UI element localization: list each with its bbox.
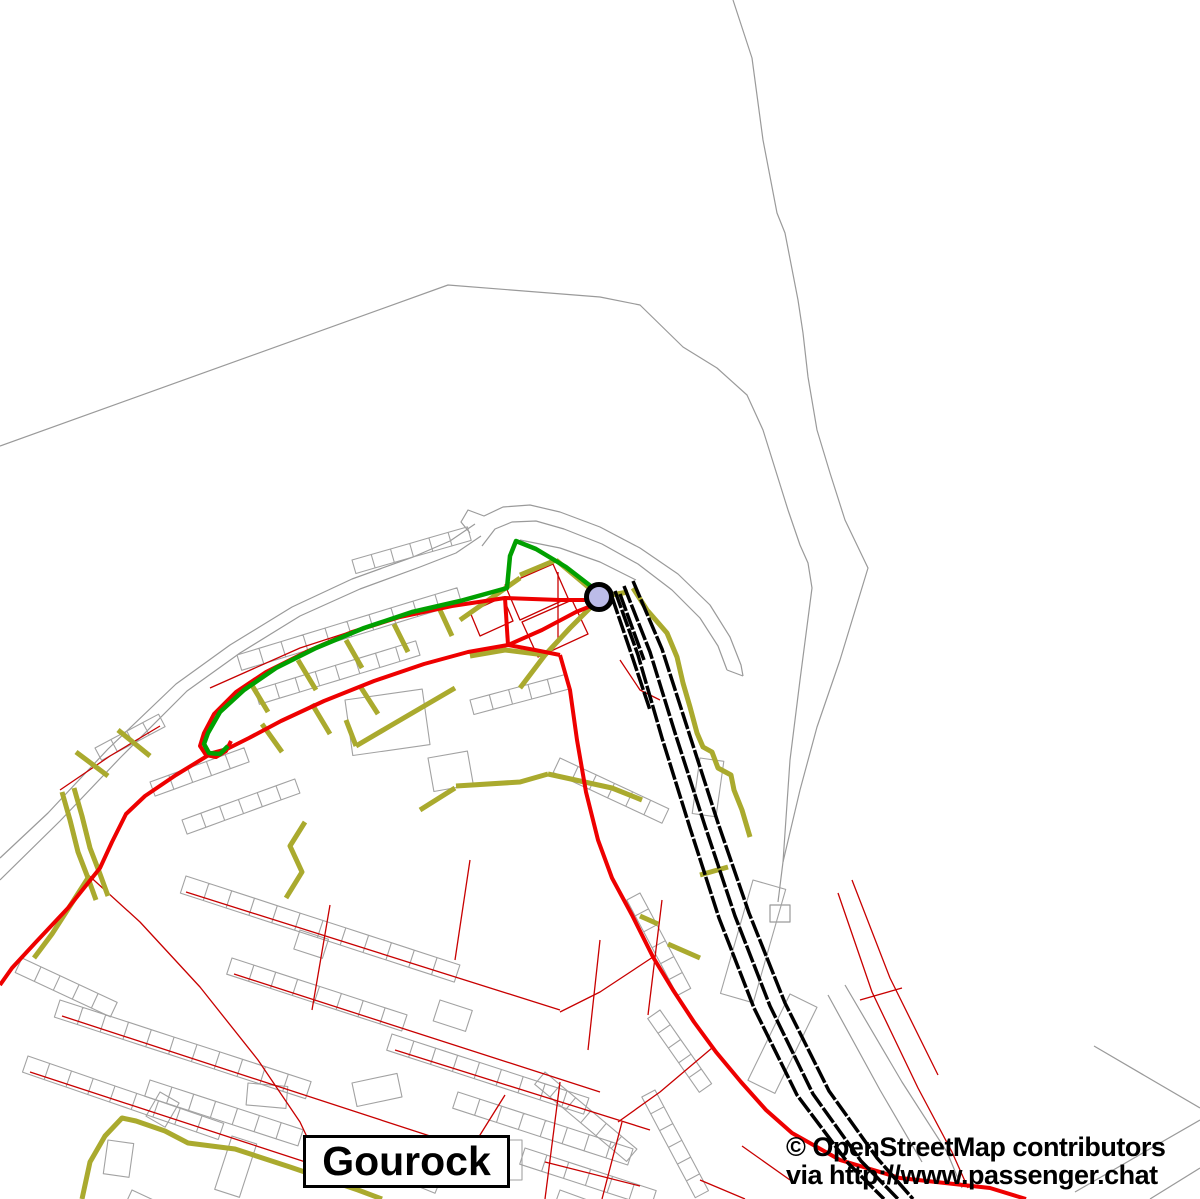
attribution-line-2: via http://www.passenger.chat: [786, 1161, 1196, 1189]
layer-minor-roads: [30, 564, 968, 1199]
map-canvas: [0, 0, 1200, 1199]
map-attribution: © OpenStreetMap contributors via http://…: [786, 1133, 1196, 1189]
place-label: Gourock: [303, 1135, 510, 1188]
attribution-line-1: © OpenStreetMap contributors: [786, 1133, 1196, 1161]
map: Gourock © OpenStreetMap contributors via…: [0, 0, 1200, 1199]
buildings-layer: [15, 527, 817, 1199]
place-label-text: Gourock: [322, 1138, 491, 1185]
station-marker[interactable]: [587, 585, 612, 610]
